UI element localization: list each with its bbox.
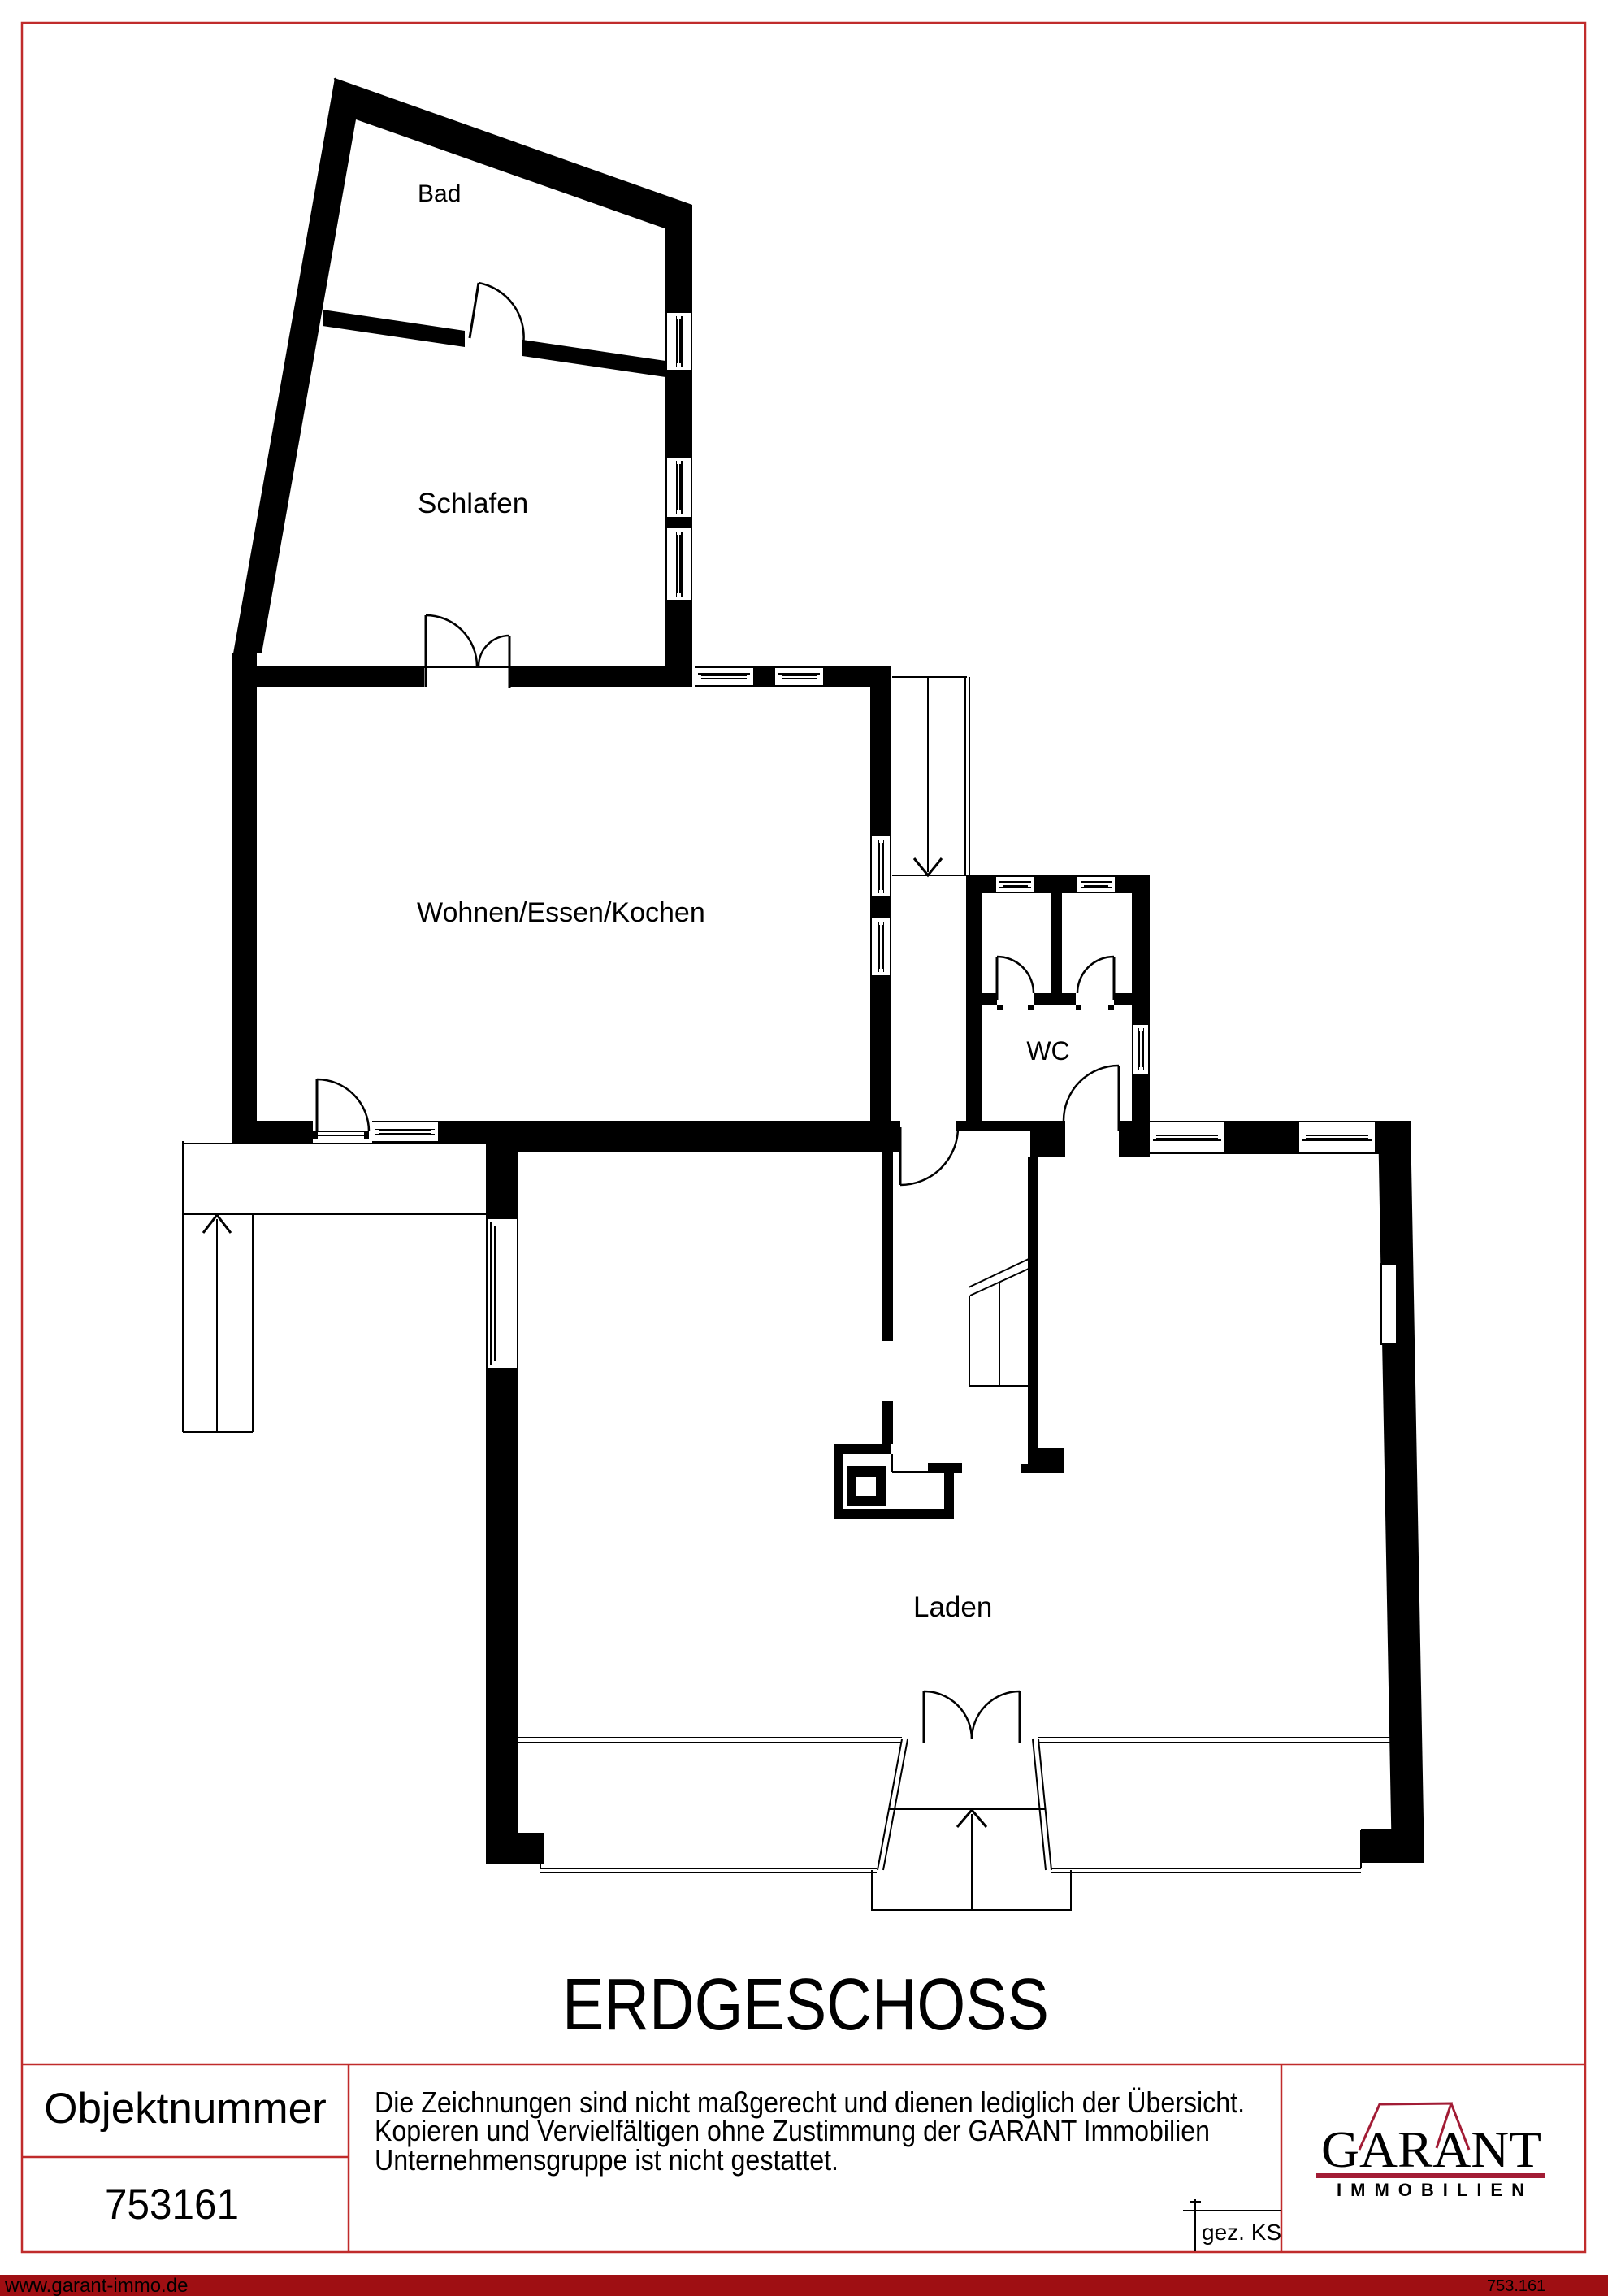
svg-text:IMMOBILIEN: IMMOBILIEN — [1337, 2180, 1533, 2200]
svg-text:Objektnummer: Objektnummer — [44, 2085, 327, 2133]
svg-text:WC: WC — [1026, 1036, 1069, 1066]
svg-text:gez. KS: gez. KS — [1202, 2220, 1281, 2245]
svg-text:Laden: Laden — [913, 1591, 992, 1623]
svg-text:ERDGESCHOSS: ERDGESCHOSS — [562, 1964, 1049, 2046]
svg-text:Wohnen/Essen/Kochen: Wohnen/Essen/Kochen — [417, 897, 705, 928]
svg-text:Kopieren und Vervielfältigen o: Kopieren und Vervielfältigen ohne Zustim… — [375, 2114, 1210, 2147]
svg-text:Bad: Bad — [418, 180, 461, 207]
svg-text:Unternehmensgruppe ist nicht g: Unternehmensgruppe ist nicht gestattet. — [375, 2143, 839, 2177]
svg-text:753161: 753161 — [105, 2181, 239, 2229]
svg-text:GARANT: GARANT — [1321, 2120, 1541, 2178]
svg-text:www.garant-immo.de: www.garant-immo.de — [4, 2275, 188, 2296]
svg-text:753.161: 753.161 — [1487, 2277, 1545, 2295]
svg-text:Schlafen: Schlafen — [418, 488, 528, 519]
